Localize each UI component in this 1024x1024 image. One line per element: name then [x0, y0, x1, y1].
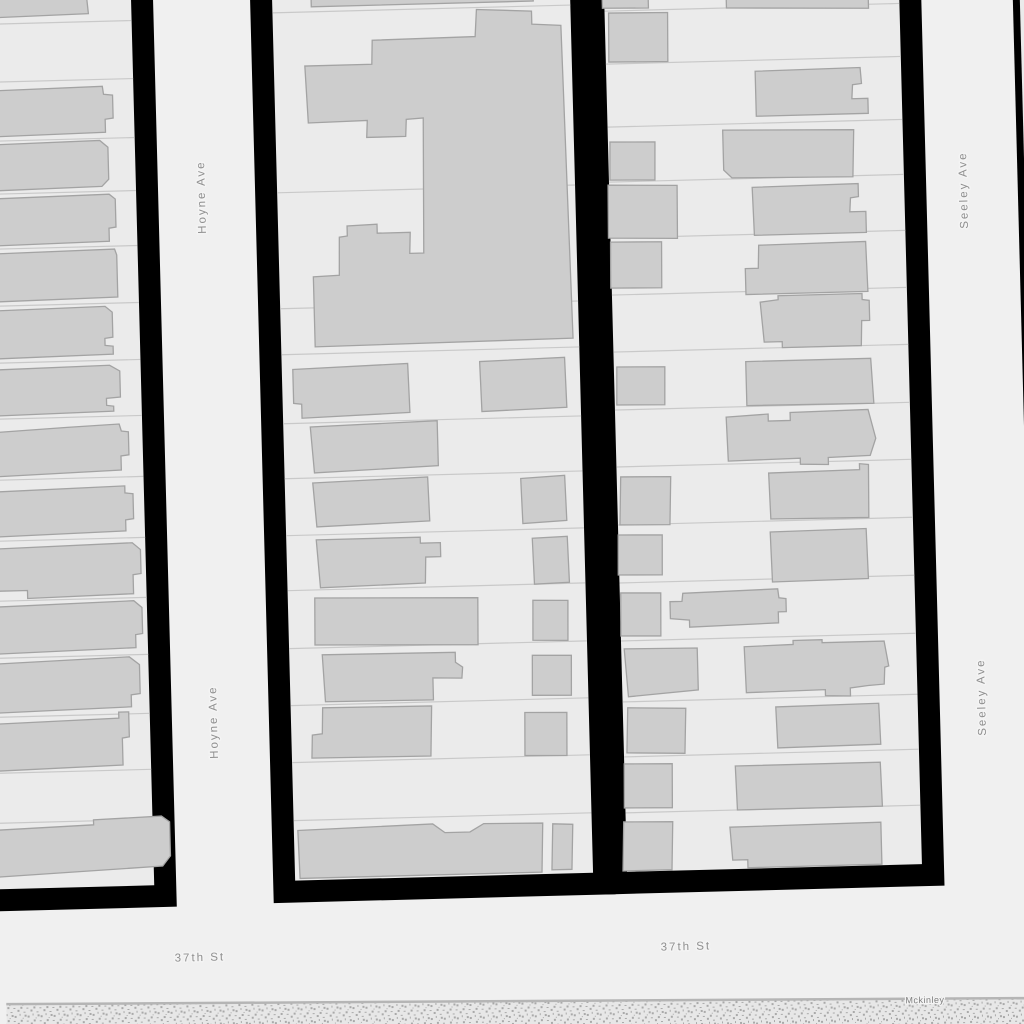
building-footprint: [531, 654, 572, 696]
building-footprint: [316, 537, 441, 588]
building-footprint: [0, 657, 141, 714]
street-label-hoyne-ave-1: Hoyne Ave: [195, 160, 209, 234]
building-footprint: [293, 363, 410, 418]
building-footprint: [626, 706, 687, 755]
building-footprint: [624, 647, 698, 697]
building-footprint: [0, 86, 114, 138]
building-footprint: [609, 141, 656, 181]
building-footprint: [752, 183, 866, 235]
street-label-seeley-ave-2: Seeley Ave: [975, 658, 989, 736]
map-canvas[interactable]: Hoyne AveHoyne AveSeeley AveSeeley Ave37…: [0, 0, 1024, 1024]
building-footprint: [623, 763, 673, 809]
building-footprint: [532, 599, 569, 641]
building-footprint: [746, 358, 874, 406]
building-footprint: [551, 823, 574, 870]
building-footprint: [602, 0, 648, 9]
building-footprint: [608, 12, 669, 64]
building-footprint: [619, 476, 672, 526]
building-footprint: [298, 821, 544, 878]
building-footprint: [0, 600, 143, 654]
building-footprint: [745, 241, 868, 294]
building-footprint: [310, 421, 438, 473]
building-footprint: [0, 365, 121, 417]
park-label-mckinley: Mckinley: [905, 995, 944, 1006]
building-footprint: [755, 67, 868, 116]
building-footprint: [0, 249, 118, 303]
building-footprint: [768, 463, 869, 520]
building-footprint: [620, 592, 662, 637]
building-footprint: [313, 477, 430, 527]
building-footprint: [760, 293, 870, 348]
building-footprint: [735, 762, 882, 810]
building-footprint: [314, 594, 479, 649]
building-footprint: [0, 424, 129, 478]
building-footprint: [521, 475, 567, 523]
building-footprint: [0, 140, 109, 191]
building-footprint: [480, 357, 567, 411]
building-footprint: [607, 183, 678, 240]
street-label-37th-st-1: 37th St: [175, 951, 226, 964]
building-footprint: [723, 127, 855, 180]
building-footprint: [610, 241, 663, 289]
street-label-37th-st-2: 37th St: [661, 940, 712, 953]
building-footprint: [0, 543, 142, 600]
building-footprint: [770, 528, 868, 582]
street-label-hoyne-ave-2: Hoyne Ave: [207, 685, 221, 759]
building-footprint: [532, 536, 569, 584]
building-footprint: [0, 194, 116, 247]
building-footprint: [311, 705, 433, 759]
building-footprint: [776, 703, 881, 748]
street-label-seeley-ave-1: Seeley Ave: [957, 151, 971, 229]
building-footprint: [616, 366, 666, 406]
building-footprint: [524, 711, 568, 756]
building-footprint: [730, 822, 882, 868]
building-footprint: [0, 306, 113, 359]
building-footprint: [617, 534, 663, 576]
map-svg[interactable]: Hoyne AveHoyne AveSeeley AveSeeley Ave37…: [0, 0, 1024, 1024]
building-footprint: [0, 486, 134, 538]
building-footprint: [622, 821, 674, 871]
